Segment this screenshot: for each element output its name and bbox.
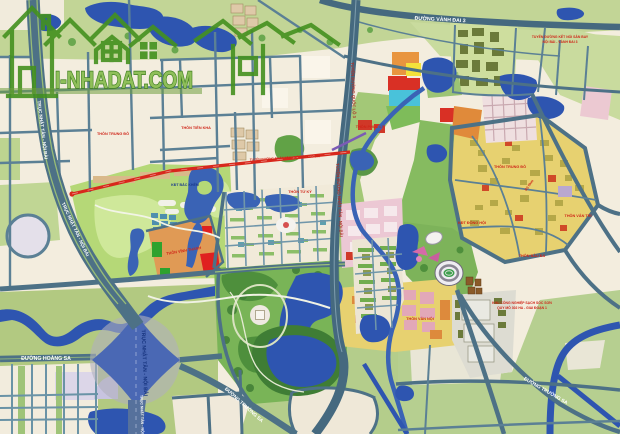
svg-text:THÔN TỨ KỲ: THÔN TỨ KỲ [288,189,312,194]
svg-text:TUYẾN ĐƯỜNG KẾT NỐI SÂN BAY: TUYẾN ĐƯỜNG KẾT NỐI SÂN BAY [532,34,589,39]
svg-text:ĐƯỜNG HOÀNG SA: ĐƯỜNG HOÀNG SA [21,354,71,362]
svg-text:KHU CÔNG NGHIỆP SẠCH SÓC SƠN: KHU CÔNG NGHIỆP SẠCH SÓC SƠN [492,300,552,305]
svg-text:THÔN BẦU ĐÁ: THÔN BẦU ĐÁ [519,253,546,258]
svg-text:THÔN TIÊN KHA: THÔN TIÊN KHA [181,125,211,130]
svg-text:THÔN TRUNG ĐÔ: THÔN TRUNG ĐÔ [97,131,129,136]
svg-text:I-NHADAT.COM: I-NHADAT.COM [55,67,193,94]
svg-text:THÔN VÂN NỘI: THÔN VÂN NỘI [406,316,434,321]
svg-text:KĐT BẮC KHÊM: KĐT BẮC KHÊM [171,182,199,187]
svg-text:THÔN TRUNG ĐÔ: THÔN TRUNG ĐÔ [494,164,526,169]
svg-text:NỘI BÀI - VÀNH ĐAI 3: NỘI BÀI - VÀNH ĐAI 3 [542,39,577,44]
svg-text:KĐT ĐÔNG HỘI: KĐT ĐÔNG HỘI [458,220,486,225]
svg-text:QUY MÔ 302 HA - GIAI ĐOẠN 1: QUY MÔ 302 HA - GIAI ĐOẠN 1 [497,305,547,310]
svg-text:THÔN PHÚC LÝ: THÔN PHÚC LÝ [356,124,385,129]
svg-text:THÔN VÂN TRÌ: THÔN VÂN TRÌ [565,213,592,218]
